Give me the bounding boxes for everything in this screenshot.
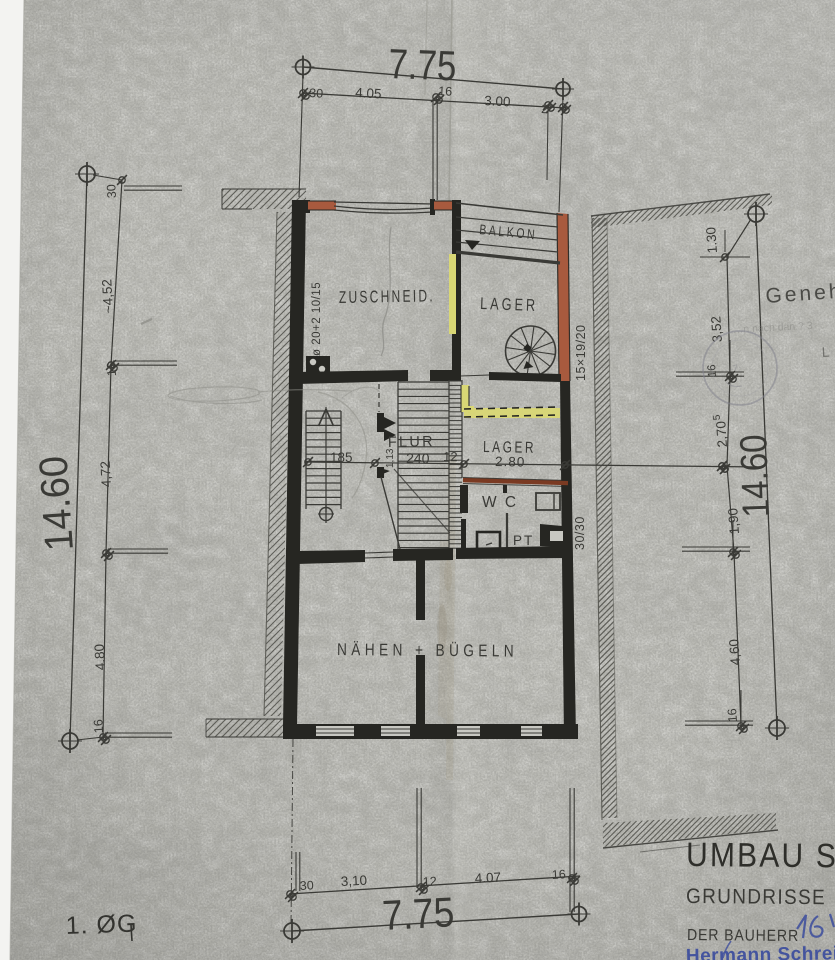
svg-text:3.00: 3.00 xyxy=(484,93,511,109)
svg-text:1.30: 1.30 xyxy=(703,227,720,254)
svg-text:4.05: 4.05 xyxy=(355,85,382,101)
svg-text:240: 240 xyxy=(406,450,430,466)
svg-text:ø 20+2 10/15: ø 20+2 10/15 xyxy=(311,282,323,356)
svg-text:16: 16 xyxy=(104,362,119,377)
svg-text:3,10: 3,10 xyxy=(340,873,367,889)
svg-text:GRUNDRISSE: GRUNDRISSE xyxy=(686,885,826,909)
svg-text:4,72: 4,72 xyxy=(98,461,114,488)
svg-text:UMBAU S: UMBAU S xyxy=(686,836,835,875)
svg-text:W C: W C xyxy=(482,494,518,511)
svg-text:12: 12 xyxy=(422,874,437,889)
svg-text:~4,52: ~4,52 xyxy=(99,279,116,314)
svg-text:1. ØG: 1. ØG xyxy=(65,910,138,940)
svg-text:16: 16 xyxy=(551,867,566,882)
svg-text:16: 16 xyxy=(438,84,453,99)
svg-text:Hermann Schreiner: Hermann Schreiner xyxy=(686,943,835,960)
svg-text:4,60: 4,60 xyxy=(726,639,743,666)
svg-text:30: 30 xyxy=(104,184,119,199)
svg-text:16: 16 xyxy=(706,364,719,378)
svg-text:Geneh: Geneh xyxy=(765,280,835,308)
svg-text:4.80: 4.80 xyxy=(92,644,108,671)
svg-text:PT: PT xyxy=(513,533,534,548)
svg-text:2.80: 2.80 xyxy=(495,454,526,470)
svg-text:4.07: 4.07 xyxy=(474,870,501,886)
svg-text:14.60: 14.60 xyxy=(733,434,778,518)
svg-text:L: L xyxy=(821,344,830,360)
svg-text:2,70: 2,70 xyxy=(713,421,730,448)
svg-text:14.60: 14.60 xyxy=(31,455,82,553)
svg-text:1,13: 1,13 xyxy=(385,448,396,468)
svg-text:2: 2 xyxy=(541,102,549,116)
svg-text:1,90: 1,90 xyxy=(725,508,742,535)
svg-text:FLUR: FLUR xyxy=(388,433,435,451)
svg-text:ZUSCHNEID.: ZUSCHNEID. xyxy=(339,286,435,307)
svg-text:15×19/20: 15×19/20 xyxy=(574,325,588,381)
svg-text:30: 30 xyxy=(309,86,324,101)
svg-text:30/30: 30/30 xyxy=(573,516,587,550)
svg-text:7.75: 7.75 xyxy=(381,888,455,939)
svg-text:16: 16 xyxy=(91,719,106,734)
svg-text:12: 12 xyxy=(443,449,458,464)
svg-text:30: 30 xyxy=(299,878,314,893)
svg-text:DER BAUHERR: DER BAUHERR xyxy=(687,927,799,945)
svg-text:7.75: 7.75 xyxy=(388,40,458,89)
svg-text:185: 185 xyxy=(330,450,353,465)
svg-text:LAGER: LAGER xyxy=(480,294,539,315)
svg-text:NÄHEN + BÜGELN: NÄHEN + BÜGELN xyxy=(337,640,518,661)
